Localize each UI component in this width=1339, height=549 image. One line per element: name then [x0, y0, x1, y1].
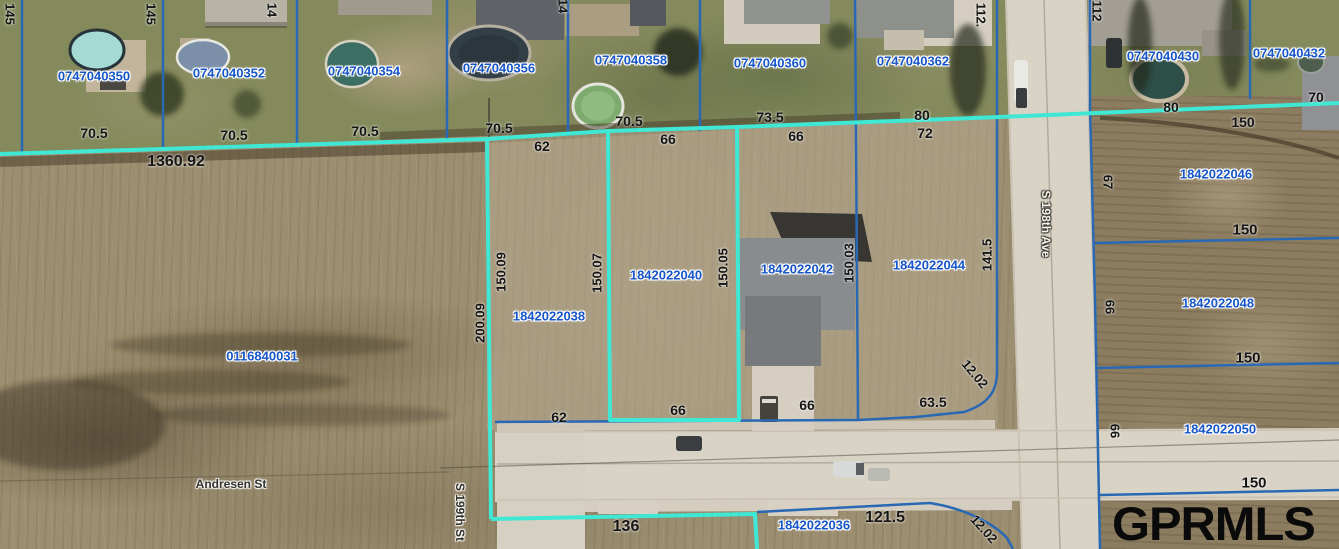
dimension-label: 150 — [1232, 223, 1257, 238]
dimension-label: 67 — [1102, 175, 1115, 189]
dimension-label: 12.02 — [960, 357, 991, 390]
dimension-label: 73.5 — [756, 110, 783, 124]
parcel-id-label: 0747040350 — [58, 70, 130, 83]
parcel-id-label: 0747040354 — [328, 65, 400, 78]
parcel-id-label: 1842022042 — [761, 263, 833, 276]
dimension-label: 70.5 — [80, 126, 107, 140]
dimension-label: 1360.92 — [147, 154, 205, 170]
dimension-label: 121.5 — [865, 510, 905, 526]
dimension-label: 150 — [1231, 115, 1254, 129]
dimension-label: 145 — [4, 3, 17, 25]
parcel-id-label: 0747040356 — [463, 62, 535, 75]
parcel-id-label: 0747040432 — [1253, 47, 1325, 60]
parcel-id-label: 1842022044 — [893, 259, 965, 272]
parcel-id-label: 0747040362 — [877, 55, 949, 68]
dimension-label: 150.09 — [495, 252, 508, 292]
gprmls-watermark: GPRMLS — [1112, 496, 1315, 549]
parcel-id-label: 1842022050 — [1184, 423, 1256, 436]
dimension-label: 80 — [1163, 100, 1179, 114]
dimension-label: 66 — [788, 129, 804, 143]
dimension-label: 150.05 — [717, 248, 730, 288]
dimension-label: 14 — [557, 0, 570, 13]
aerial-parcel-map: 0747040350074704035207470403540747040356… — [0, 0, 1339, 549]
street-name-label: S 199th St — [454, 483, 466, 541]
dimension-label: 62 — [551, 410, 567, 424]
parcel-id-label: 1842022046 — [1180, 168, 1252, 181]
dimension-label: 150 — [1241, 476, 1266, 491]
dimension-label: 70.5 — [615, 114, 642, 128]
street-name-label: S 198th Ave — [1040, 190, 1052, 257]
parcel-id-label: 0747040352 — [193, 67, 265, 80]
dimension-label: 136 — [613, 519, 640, 535]
dimension-label: 112 — [1091, 1, 1104, 22]
dimension-label: 70.5 — [220, 128, 247, 142]
dimension-label: 66 — [1104, 300, 1117, 314]
parcel-id-label: 0747040430 — [1127, 50, 1199, 63]
dimension-label: 14 — [266, 3, 279, 17]
parcel-id-label: 1842022036 — [778, 519, 850, 532]
parcel-id-label: 0116840031 — [226, 350, 298, 363]
street-name-label: Andresen St — [196, 478, 267, 490]
dimension-label: 66 — [660, 132, 676, 146]
dimension-label: 200.09 — [474, 303, 487, 343]
dimension-label: 62 — [534, 139, 550, 153]
dimension-label: 145 — [145, 3, 158, 25]
dimension-label: 63.5 — [919, 395, 946, 409]
map-labels: 0747040350074704035207470403540747040356… — [0, 0, 1339, 549]
parcel-id-label: 1842022048 — [1182, 297, 1254, 310]
dimension-label: 70.5 — [351, 124, 378, 138]
parcel-id-label: 1842022038 — [513, 310, 585, 323]
dimension-label: 12.02 — [968, 513, 999, 546]
parcel-id-label: 0747040360 — [734, 57, 806, 70]
dimension-label: 66 — [670, 403, 686, 417]
dimension-label: 112. — [975, 3, 988, 28]
dimension-label: 150.03 — [843, 243, 856, 283]
dimension-label: 70.5 — [485, 121, 512, 135]
dimension-label: 150 — [1235, 351, 1260, 366]
parcel-id-label: 0747040358 — [595, 54, 667, 67]
dimension-label: 66 — [799, 398, 815, 412]
dimension-label: 70 — [1308, 90, 1324, 104]
dimension-label: 66 — [1109, 424, 1122, 438]
dimension-label: 141.5 — [981, 239, 994, 272]
dimension-label: 72 — [917, 126, 933, 140]
dimension-label: 150.07 — [591, 253, 604, 293]
dimension-label: 80 — [914, 108, 930, 122]
parcel-id-label: 1842022040 — [630, 269, 702, 282]
